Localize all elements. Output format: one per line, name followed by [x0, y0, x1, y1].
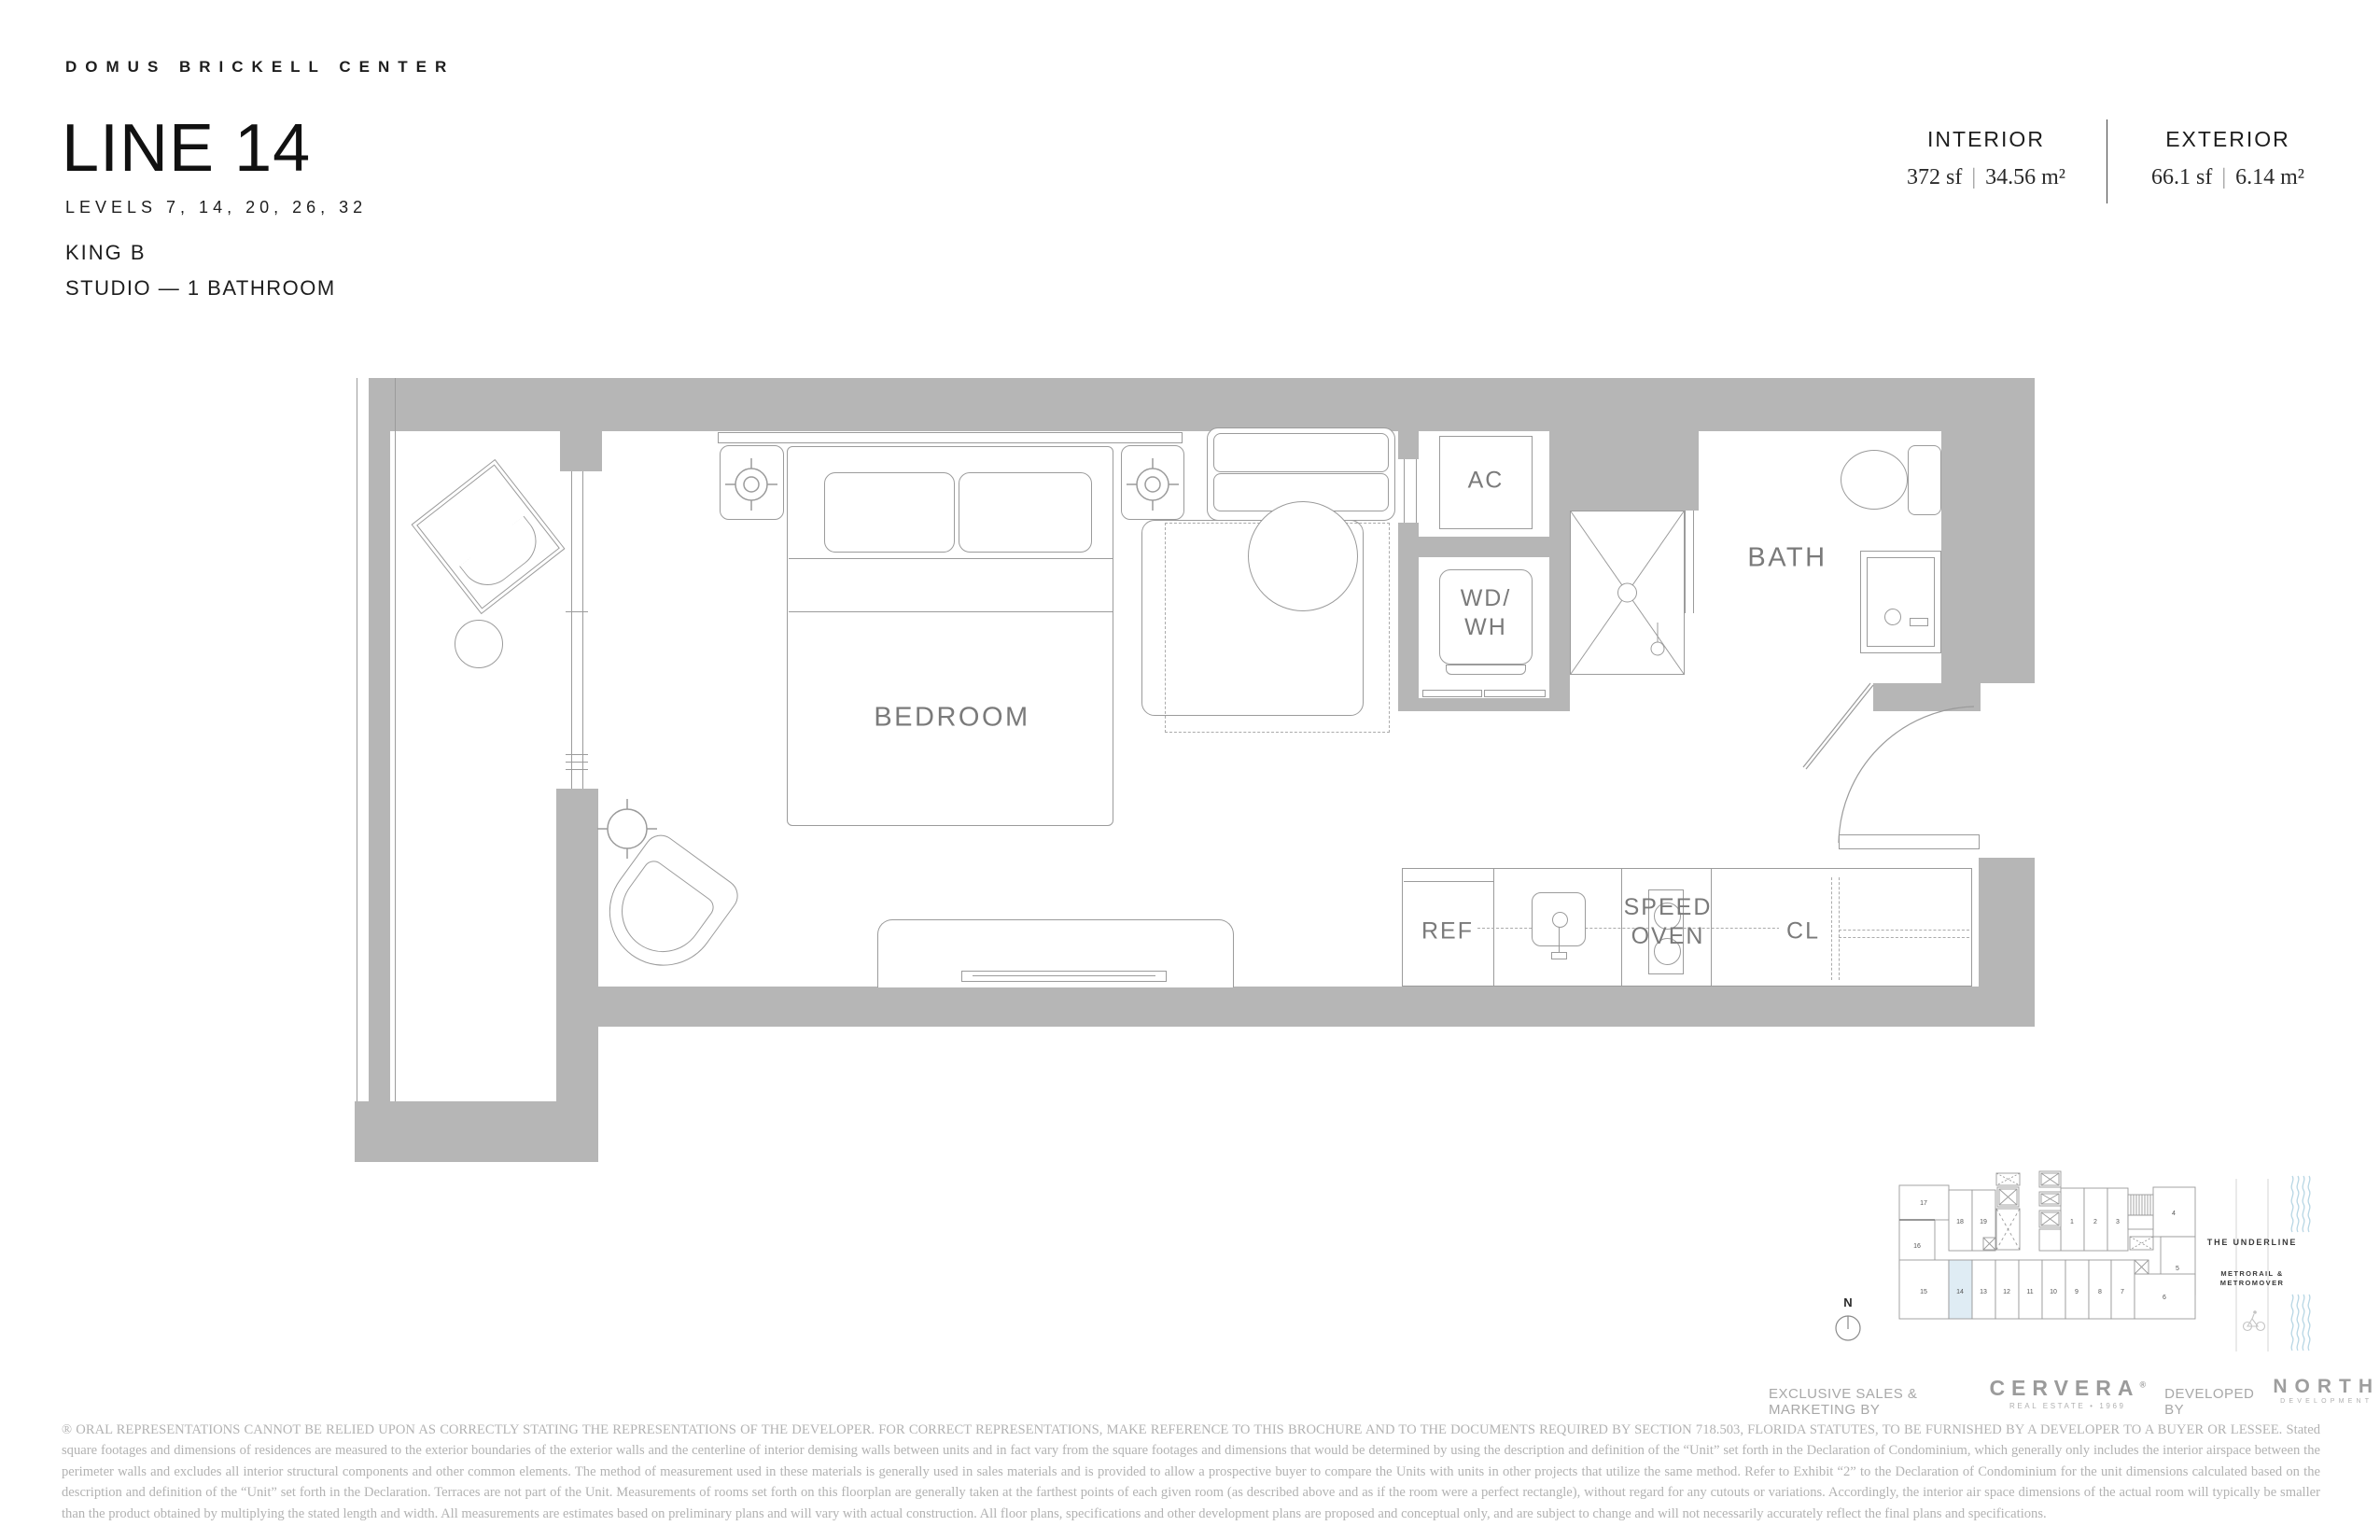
- keyplan: 17 16 18 19 1 2 3 4 5 15 14 13 12 11 10 …: [1820, 1157, 2343, 1358]
- balcony-side-table: [455, 620, 503, 668]
- soap-dish: [1910, 618, 1928, 626]
- wall-shower-top: [1570, 431, 1699, 511]
- vanity: [1860, 551, 1941, 653]
- lounge-chair-seat: [459, 516, 548, 596]
- pillow-left: [824, 472, 955, 553]
- underline-label: THE UNDERLINE: [2207, 1238, 2297, 1247]
- cervera-sub: REAL ESTATE • 1969: [1989, 1402, 2146, 1410]
- wd-label-line2: WH: [1461, 613, 1512, 642]
- project-name: DOMUS BRICKELL CENTER: [65, 58, 455, 77]
- interior-sf: 372 sf: [1907, 165, 1962, 189]
- cervera-reg: ®: [2139, 1379, 2146, 1389]
- keyplan-num-14: 14: [1956, 1289, 1964, 1295]
- bath-label: BATH: [1747, 543, 1827, 574]
- closet-upper-counter: [1839, 834, 1980, 849]
- bicycle-icon: [2244, 1310, 2265, 1330]
- keyplan-num-9: 9: [2075, 1289, 2079, 1295]
- wall-entry-block: [1979, 858, 2035, 987]
- stats-divider: [2107, 119, 2107, 203]
- compass-n: N: [1843, 1295, 1852, 1309]
- wall-closet-mid: [1398, 537, 1570, 557]
- balcony-rail-line-inner: [395, 378, 396, 1101]
- keyplan-num-7: 7: [2121, 1289, 2124, 1295]
- wall-closet-strip: [1398, 698, 1570, 711]
- keyplan-num-4: 4: [2172, 1211, 2176, 1217]
- keyplan-num-2: 2: [2093, 1219, 2097, 1225]
- faucet-icon: [1884, 609, 1901, 625]
- sliding-door-line-b: [582, 471, 583, 789]
- keyplan-num-16: 16: [1913, 1243, 1921, 1250]
- bifold-door: [1484, 690, 1546, 697]
- exterior-label: EXTERIOR: [2125, 127, 2331, 152]
- north-wordmark: NORTH: [2273, 1376, 2380, 1398]
- sink-faucet-icon: [1552, 912, 1568, 928]
- stat-separator: |: [1962, 165, 1985, 189]
- exterior-m2: 6.14 m²: [2235, 165, 2304, 189]
- sliding-door-tick: [566, 611, 588, 612]
- toilet-tank: [1908, 445, 1941, 515]
- stat-separator: |: [2212, 165, 2235, 189]
- keyplan-num-3: 3: [2116, 1219, 2120, 1225]
- metro-label-line1: METRORAIL &: [2220, 1269, 2283, 1278]
- wall-bottom: [598, 987, 2035, 1027]
- wall-right: [1941, 431, 2035, 683]
- sliding-door-tick: [566, 754, 588, 755]
- lamp-icon: [721, 455, 781, 514]
- metro-label-line2: METROMOVER: [2220, 1279, 2285, 1287]
- wave-icon: [2291, 1176, 2310, 1351]
- unit-config: STUDIO — 1 BATHROOM: [65, 276, 336, 301]
- wall-pier: [560, 431, 602, 471]
- keyplan-num-12: 12: [2003, 1289, 2010, 1295]
- page-title: LINE 14: [62, 110, 311, 187]
- bedroom-label: BEDROOM: [874, 703, 1029, 734]
- balcony-rail-band: [369, 378, 390, 1101]
- closet-dash-vertical: [1831, 877, 1840, 980]
- vanity-sink: [1867, 557, 1935, 647]
- cl-label: CL: [1779, 918, 1827, 945]
- toilet-bowl: [1841, 450, 1908, 510]
- floor-lamp-icon: [597, 799, 657, 859]
- closet-dash-horizontal: [1839, 930, 1969, 938]
- keyplan-num-5: 5: [2176, 1266, 2179, 1272]
- round-table: [1248, 501, 1358, 611]
- stats-interior: INTERIOR 372 sf|34.56 m²: [1883, 127, 2089, 190]
- unit-type: KING B: [65, 241, 147, 265]
- balcony-rail-line-outer: [357, 378, 357, 1101]
- keyplan-num-11: 11: [2026, 1289, 2033, 1295]
- stats-exterior: EXTERIOR 66.1 sf|6.14 m²: [2125, 127, 2331, 190]
- balcony-lounge-chair: [416, 464, 560, 609]
- ac-label: AC: [1468, 468, 1505, 495]
- wall-closet-left-a: [1398, 431, 1419, 459]
- wall-balcony-bottom: [355, 1101, 598, 1162]
- keyplan-num-17: 17: [1920, 1200, 1927, 1207]
- cervera-wordmark: CERVERA: [1989, 1376, 2139, 1400]
- north-sub: DEVELOPMENT: [2273, 1398, 2380, 1405]
- interior-m2: 34.56 m²: [1985, 165, 2065, 189]
- tv-line: [973, 975, 1155, 976]
- pillow-right: [959, 472, 1092, 553]
- speed-label-line1: SPEED: [1624, 893, 1713, 922]
- wd-wh-label: WD/ WH: [1461, 584, 1512, 642]
- sales-prefix: EXCLUSIVE SALES & MARKETING BY: [1769, 1386, 1970, 1418]
- exterior-sf: 66.1 sf: [2151, 165, 2212, 189]
- keyplan-num-8: 8: [2098, 1289, 2102, 1295]
- speed-oven-label: SPEED OVEN: [1624, 893, 1713, 951]
- shower-glass: [1685, 511, 1694, 613]
- keyplan-num-6: 6: [2163, 1295, 2166, 1301]
- keyplan-num-15: 15: [1920, 1289, 1927, 1295]
- washer-tray: [1446, 665, 1526, 675]
- ref-top-line: [1404, 881, 1493, 882]
- ac-closet-door: [1404, 459, 1417, 523]
- sink-faucet-base: [1551, 952, 1567, 959]
- sofa-cushion: [1213, 433, 1389, 472]
- wd-label-line1: WD/: [1461, 584, 1512, 613]
- shower-x-icon: [1570, 511, 1685, 675]
- wall-closet-right: [1549, 431, 1570, 711]
- speed-label-line2: OVEN: [1624, 922, 1713, 951]
- keyplan-stairs: [2128, 1195, 2153, 1229]
- keyplan-num-1: 1: [2070, 1219, 2074, 1225]
- bifold-door: [1422, 690, 1482, 697]
- keyplan-num-13: 13: [1980, 1289, 1987, 1295]
- keyplan-core: [2039, 1229, 2061, 1251]
- compass-icon: N: [1836, 1295, 1860, 1340]
- keyplan-num-10: 10: [2050, 1289, 2057, 1295]
- bed-sheet-line: [789, 558, 1113, 559]
- lamp-icon: [1123, 455, 1183, 514]
- levels-subtitle: LEVELS 7, 14, 20, 26, 32: [65, 198, 367, 217]
- keyplan-num-19: 19: [1980, 1219, 1987, 1225]
- headboard: [718, 432, 1183, 443]
- interior-label: INTERIOR: [1883, 127, 2089, 152]
- sliding-door-tick: [566, 762, 588, 763]
- keyplan-num-18: 18: [1956, 1219, 1964, 1225]
- developed-prefix: DEVELOPED BY: [2164, 1386, 2254, 1418]
- disclaimer: ® ORAL REPRESENTATIONS CANNOT BE RELIED …: [62, 1420, 2320, 1524]
- cervera-logo: CERVERA® REAL ESTATE • 1969: [1989, 1376, 2146, 1410]
- bed-sheet-line: [789, 611, 1113, 612]
- wall-top: [385, 378, 2035, 431]
- ref-label: REF: [1421, 918, 1474, 945]
- footer-credits: EXCLUSIVE SALES & MARKETING BY CERVERA® …: [1769, 1376, 2380, 1418]
- tv-console: [961, 971, 1167, 982]
- sliding-door-line-a: [571, 471, 572, 789]
- north-logo: NORTH DEVELOPMENT: [2273, 1376, 2380, 1405]
- sliding-door-tick: [566, 769, 588, 770]
- floor-plan: BEDROOM AC WD/ WH: [345, 373, 2037, 1176]
- sink-faucet-stem: [1559, 927, 1560, 952]
